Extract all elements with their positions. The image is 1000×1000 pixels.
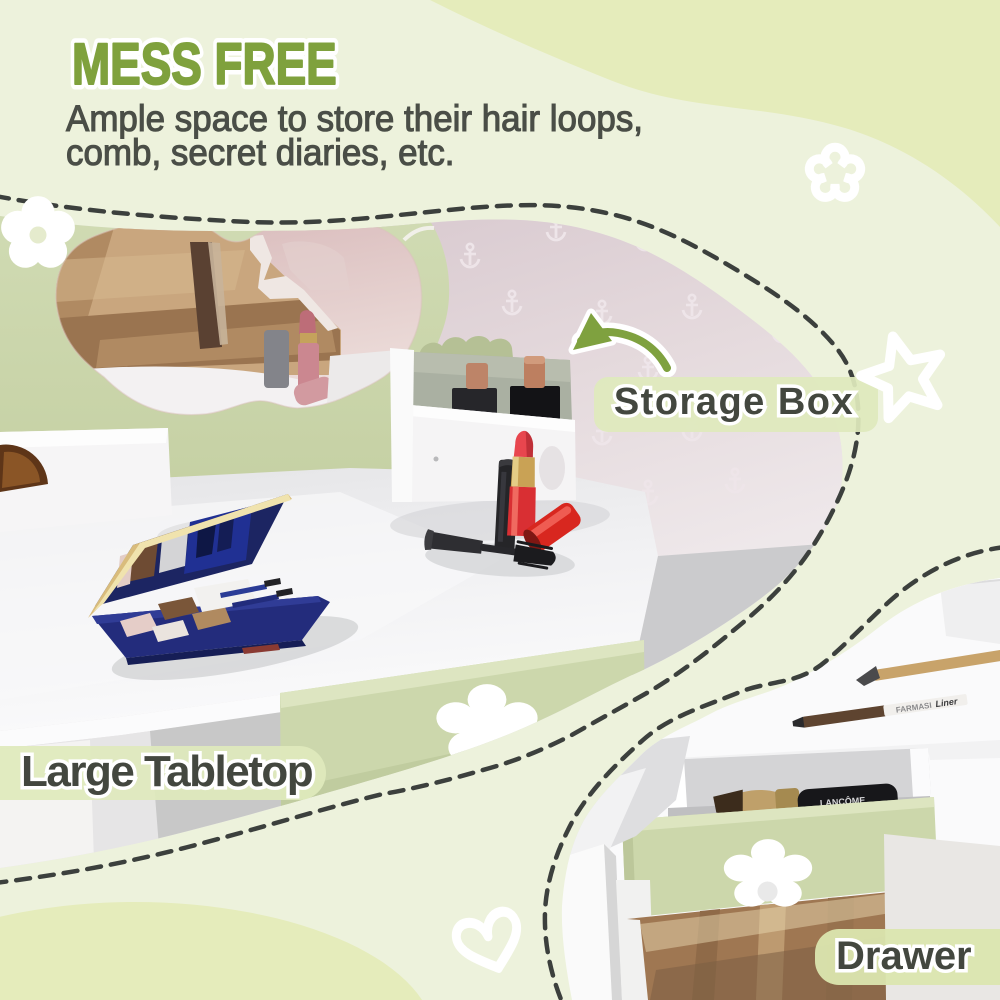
svg-text:Large Tabletop: Large Tabletop (21, 747, 313, 796)
svg-text:Drawer: Drawer (836, 934, 972, 978)
svg-text:MESS FREE: MESS FREE (72, 33, 337, 97)
svg-text:comb, secret diaries, etc.: comb, secret diaries, etc. (66, 131, 455, 173)
svg-text:Storage Box: Storage Box (614, 381, 854, 423)
